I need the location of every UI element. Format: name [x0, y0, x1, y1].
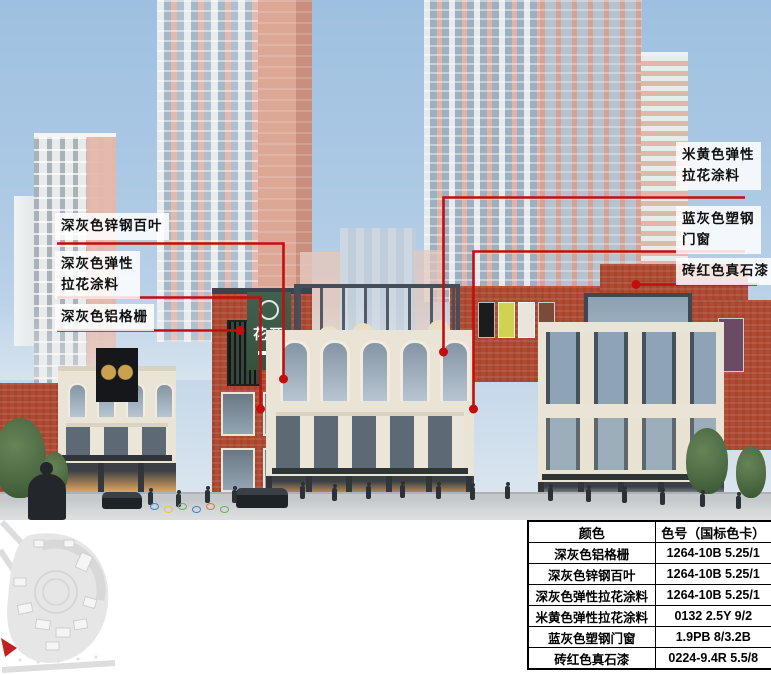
person-figure: [700, 494, 705, 507]
bicycle: [178, 503, 187, 510]
label-zinc-steel-louver: 深灰色锌钢百叶: [55, 213, 169, 240]
table-row: 深灰色弹性拉花涂料 1264-10B 5.25/1: [528, 585, 771, 606]
car: [236, 488, 288, 508]
poster: [478, 302, 495, 338]
table-row: 米黄色弹性拉花涂料 0132 2.5Y 9/2: [528, 606, 771, 627]
person-figure: [300, 486, 305, 499]
person-figure: [660, 492, 665, 505]
bay-windows-upper: [546, 332, 716, 404]
person-figure: [505, 486, 510, 499]
window: [221, 448, 255, 492]
label-blue-gray-windows: 蓝灰色塑钢 门窗: [676, 206, 761, 254]
tree: [686, 428, 728, 494]
site-plan-thumbnail: [0, 520, 120, 675]
bicycle: [206, 503, 215, 510]
window-band: [66, 423, 168, 455]
car: [102, 492, 142, 509]
billboard-plates: [96, 348, 138, 402]
label-brick-red-stone-paint: 砖红色真石漆: [676, 258, 771, 285]
person-figure: [332, 488, 337, 501]
person-figure: [548, 488, 553, 501]
table-header-row: 颜色 色号（国标色卡）: [528, 521, 771, 543]
table-row: 砖红色真石漆 0224-9.4R 5.5/8: [528, 648, 771, 670]
person-figure: [232, 490, 237, 503]
poster: [518, 302, 535, 338]
person-figure: [400, 485, 405, 498]
material-color-table: 颜色 色号（国标色卡） 深灰色铝格栅 1264-10B 5.25/1 深灰色锌钢…: [527, 520, 771, 670]
bicycle: [164, 506, 173, 513]
window-band: [276, 412, 464, 468]
arch-windows-center: [280, 340, 470, 401]
header-code: 色号（国标色卡）: [655, 521, 771, 543]
label-dark-gray-textured-paint: 深灰色弹性 拉花涂料: [55, 251, 140, 299]
tower-right: [540, 0, 642, 296]
table-row: 蓝灰色塑钢门窗 1.9PB 8/3.2B: [528, 627, 771, 648]
person-figure: [205, 490, 210, 503]
foreground-person: [28, 474, 66, 520]
awning: [62, 455, 172, 461]
annotated-elevation-sheet: 花开: [0, 0, 771, 675]
person-figure: [436, 486, 441, 499]
person-figure: [366, 486, 371, 499]
person-figure: [622, 490, 627, 503]
bicycle: [220, 506, 229, 513]
table-row: 深灰色铝格栅 1264-10B 5.25/1: [528, 543, 771, 564]
person-figure: [736, 496, 741, 509]
label-beige-textured-paint: 米黄色弹性 拉花涂料: [676, 142, 761, 190]
awning: [272, 468, 468, 474]
header-color: 颜色: [528, 521, 655, 543]
window: [221, 392, 255, 436]
person-figure: [586, 489, 591, 502]
signboard-logo: [259, 300, 279, 320]
label-aluminum-grille: 深灰色铝格栅: [55, 304, 154, 331]
person-figure: [470, 487, 475, 500]
tree: [736, 446, 766, 498]
bicycle: [192, 506, 201, 513]
poster: [498, 302, 515, 338]
table-row: 深灰色锌钢百叶 1264-10B 5.25/1: [528, 564, 771, 585]
bicycle: [150, 503, 159, 510]
